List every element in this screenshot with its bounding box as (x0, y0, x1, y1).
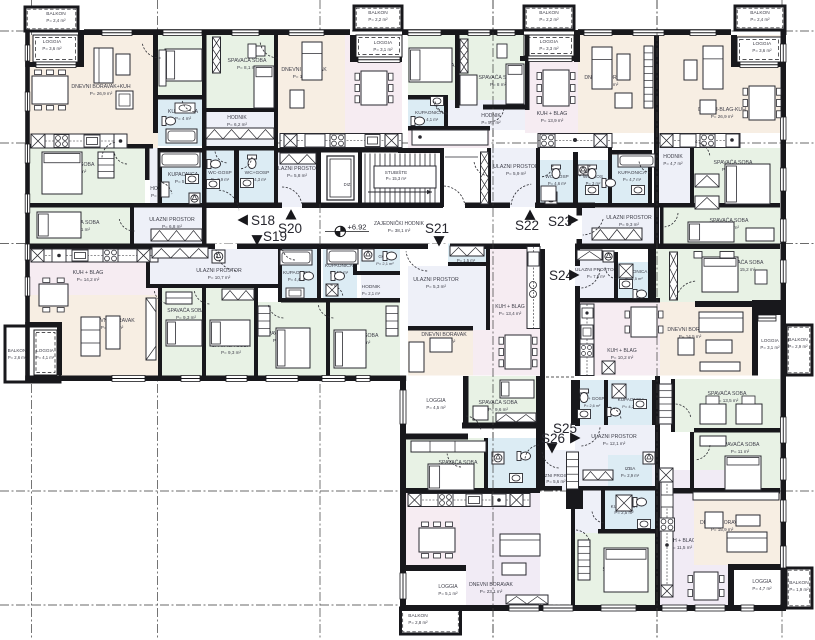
svg-text:P= 26,9 m²: P= 26,9 m² (711, 114, 734, 119)
svg-text:ULAZNI PROSTOR: ULAZNI PROSTOR (274, 166, 320, 172)
svg-text:ZAJEDNIČKI HODNIK: ZAJEDNIČKI HODNIK (374, 220, 425, 227)
svg-text:P= 13,9 m²: P= 13,9 m² (541, 118, 564, 123)
svg-text:P= 2,2 m²: P= 2,2 m² (368, 17, 388, 22)
svg-text:STUBIŠTE: STUBIŠTE (385, 169, 407, 175)
svg-text:P= 4,6 m²: P= 4,6 m² (548, 181, 567, 186)
svg-text:LOGGIA: LOGGIA (753, 41, 772, 47)
svg-text:BALKON: BALKON (46, 11, 66, 17)
svg-text:BALKON: BALKON (408, 613, 428, 619)
svg-text:P= 5,5 m²: P= 5,5 m² (481, 120, 501, 125)
svg-text:ULAZNI PROSTOR: ULAZNI PROSTOR (606, 215, 652, 221)
svg-text:DNEVNI BORAVAK: DNEVNI BORAVAK (469, 582, 513, 588)
svg-text:P= 23,1 m²: P= 23,1 m² (480, 589, 503, 594)
svg-text:LOGGIA: LOGGIA (438, 584, 458, 590)
svg-text:+6.92: +6.92 (348, 223, 367, 232)
svg-text:P= 10,7 m²: P= 10,7 m² (208, 275, 231, 280)
svg-text:WC+GOSP: WC+GOSP (245, 170, 270, 176)
svg-text:P= 2,4 m²: P= 2,4 m² (46, 18, 66, 23)
svg-text:KUH + BLAG: KUH + BLAG (607, 348, 637, 354)
svg-text:P= 2,8 m²: P= 2,8 m² (408, 620, 428, 625)
svg-text:BALKON: BALKON (788, 337, 808, 343)
svg-text:P= 9,3 m²: P= 9,3 m² (221, 350, 242, 355)
svg-text:P= 15,3 m²: P= 15,3 m² (386, 176, 407, 181)
svg-text:P= 13,4 m²: P= 13,4 m² (499, 311, 522, 316)
svg-text:P= 5,6 m²: P= 5,6 m² (546, 479, 566, 484)
svg-text:LOGGIA: LOGGIA (374, 40, 393, 46)
svg-text:P= 38,1 m²: P= 38,1 m² (388, 228, 411, 233)
svg-text:SPAVAĆA SOBA: SPAVAĆA SOBA (228, 57, 267, 64)
svg-text:LOGGIA: LOGGIA (43, 39, 62, 45)
svg-text:P= 10,2 m²: P= 10,2 m² (611, 355, 634, 360)
svg-text:P= 14,2 m²: P= 14,2 m² (77, 277, 100, 282)
svg-text:KUPAONICA: KUPAONICA (618, 170, 647, 176)
svg-text:P= 9,3 m²: P= 9,3 m² (176, 315, 197, 320)
svg-text:P= 3,3 m²: P= 3,3 m² (539, 46, 559, 51)
svg-text:P= 9,3 m²: P= 9,3 m² (619, 222, 640, 227)
svg-text:P= 8 m²: P= 8 m² (490, 82, 507, 87)
svg-text:BALKON: BALKON (8, 348, 27, 353)
svg-text:P= 4,7 m²: P= 4,7 m² (752, 586, 772, 591)
svg-text:P= 4,7 m²: P= 4,7 m² (623, 177, 642, 182)
svg-text:P= 2,4 m²: P= 2,4 m² (750, 17, 770, 22)
svg-text:ULAZNI PROSTOR: ULAZNI PROSTOR (149, 217, 195, 223)
svg-text:S21: S21 (425, 221, 449, 236)
svg-text:BALKON: BALKON (750, 10, 770, 16)
svg-text:P= 6,2 m²: P= 6,2 m² (227, 122, 248, 127)
svg-text:P= 5,8 m²: P= 5,8 m² (287, 173, 308, 178)
svg-text:P= 2,2 m²: P= 2,2 m² (539, 17, 559, 22)
svg-text:P= 2,9 m²: P= 2,9 m² (621, 473, 640, 478)
svg-text:LOGGIA: LOGGIA (752, 579, 772, 585)
svg-text:P= 5,9 m²: P= 5,9 m² (506, 171, 527, 176)
svg-text:LOGGIA: LOGGIA (761, 338, 780, 343)
svg-text:P= 7,5 m²: P= 7,5 m² (587, 274, 606, 279)
svg-text:HODNIK: HODNIK (362, 284, 381, 290)
svg-text:ULAZNI PROSTOR: ULAZNI PROSTOR (413, 277, 459, 283)
svg-text:P= 2,9 m²: P= 2,9 m² (788, 344, 808, 349)
svg-text:P= 5,1 m²: P= 5,1 m² (438, 591, 458, 596)
svg-text:P= 3,6 m²: P= 3,6 m² (752, 48, 772, 53)
svg-text:P= 2,6 m²: P= 2,6 m² (584, 404, 601, 408)
svg-text:HODNIK: HODNIK (227, 115, 247, 121)
svg-text:BALKON: BALKON (539, 10, 559, 16)
svg-text:P= 4,7 m²: P= 4,7 m² (663, 161, 683, 166)
svg-text:P= 3,1 m²: P= 3,1 m² (373, 47, 393, 52)
svg-text:DNEVNI BORAVAK+KUH: DNEVNI BORAVAK+KUH (71, 84, 131, 90)
svg-text:LOGGIA: LOGGIA (426, 398, 446, 404)
svg-text:KUH + BLAG: KUH + BLAG (537, 111, 568, 117)
svg-text:ULAZNI PROSTOR: ULAZNI PROSTOR (493, 164, 539, 170)
svg-text:P= 5,3 m²: P= 5,3 m² (426, 284, 447, 289)
svg-text:P= 4 m²: P= 4 m² (175, 116, 192, 121)
svg-text:HODNIK: HODNIK (481, 113, 501, 119)
svg-text:KUH + BLAG: KUH + BLAG (495, 304, 525, 310)
svg-text:IZBA: IZBA (625, 466, 636, 472)
svg-text:ULAZNI PROSTOR: ULAZNI PROSTOR (575, 267, 618, 273)
svg-text:BALKON: BALKON (368, 10, 388, 16)
svg-text:P= 9,6 m²: P= 9,6 m² (488, 407, 509, 412)
svg-text:HODNIK: HODNIK (663, 154, 683, 160)
svg-text:S18: S18 (251, 213, 275, 228)
svg-text:LOGGIA: LOGGIA (36, 348, 55, 353)
svg-text:P= 6,8 m²: P= 6,8 m² (162, 224, 183, 229)
svg-text:KUH + BLAG: KUH + BLAG (73, 270, 104, 276)
svg-text:BALKON: BALKON (789, 580, 809, 586)
svg-text:S20: S20 (278, 221, 302, 236)
svg-text:P= 3,6 m²: P= 3,6 m² (42, 46, 62, 51)
svg-text:SPAVAĆA SOBA: SPAVAĆA SOBA (479, 399, 518, 406)
svg-text:P= 1,9 m²: P= 1,9 m² (789, 587, 809, 592)
svg-text:P= 3,1 m²: P= 3,1 m² (760, 345, 780, 350)
svg-text:P= 2,6 m²: P= 2,6 m² (8, 355, 27, 360)
svg-text:P= 2,1 m²: P= 2,1 m² (362, 291, 381, 296)
svg-text:DNEVNI BORAVAK: DNEVNI BORAVAK (421, 332, 467, 338)
svg-text:P= 4,1 m²: P= 4,1 m² (36, 355, 55, 360)
svg-text:P= 2,1 m²: P= 2,1 m² (376, 261, 394, 266)
svg-text:DIZ: DIZ (344, 182, 351, 187)
svg-text:LOGGIA: LOGGIA (540, 39, 559, 45)
svg-text:P= 4,5 m²: P= 4,5 m² (426, 405, 446, 410)
svg-text:P= 11 m²: P= 11 m² (731, 449, 750, 454)
svg-text:S22: S22 (515, 218, 539, 233)
svg-text:WC-GOSP: WC-GOSP (208, 170, 231, 176)
svg-text:SPAVAĆA SOBA: SPAVAĆA SOBA (167, 307, 205, 314)
svg-text:P= 26,9 m²: P= 26,9 m² (90, 91, 113, 96)
svg-text:P= 12,1 m²: P= 12,1 m² (603, 441, 626, 446)
